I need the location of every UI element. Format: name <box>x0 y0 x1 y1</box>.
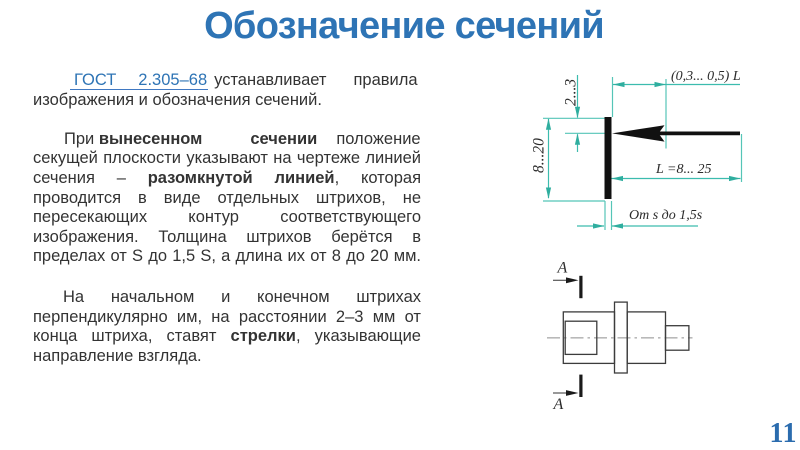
svg-text:L =8... 25: L =8... 25 <box>655 162 711 177</box>
svg-text:От s до 1,5s: От s до 1,5s <box>629 208 703 223</box>
svg-text:A: A <box>557 259 568 276</box>
svg-text:A: A <box>553 396 564 413</box>
svg-text:8...20: 8...20 <box>531 138 548 173</box>
svg-text:2...3: 2...3 <box>563 79 580 106</box>
svg-text:(0,3... 0,5) L: (0,3... 0,5) L <box>671 69 741 84</box>
